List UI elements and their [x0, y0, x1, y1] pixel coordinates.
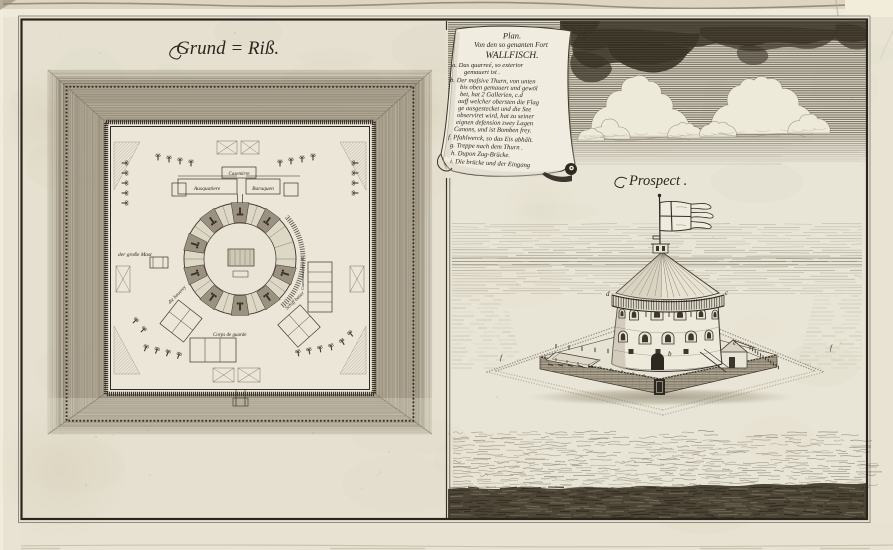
svg-text:a. Das quarreé, so exterior: a. Das quarreé, so exterior	[452, 62, 524, 69]
svg-text:d: d	[606, 290, 610, 298]
svg-text:Ausquatiere: Ausquatiere	[193, 186, 221, 192]
svg-text:Grund = Riß.: Grund = Riß.	[176, 38, 279, 59]
svg-text:gemauert ist .: gemauert ist .	[464, 69, 500, 76]
svg-text:Baraquen: Baraquen	[252, 186, 274, 192]
svg-text:der große Mast: der große Mast	[118, 251, 152, 258]
svg-text:Plan.: Plan.	[502, 31, 521, 41]
svg-text:Casemirre: Casemirre	[229, 172, 251, 177]
svg-text:Von den so genanten Fort: Von den so genanten Fort	[474, 41, 549, 49]
svg-text:Canons, und ist Bomben frey.: Canons, und ist Bomben frey.	[454, 126, 532, 134]
svg-text:Corps de guarde: Corps de guarde	[213, 333, 247, 338]
svg-text:WALLFISCH.: WALLFISCH.	[486, 51, 539, 61]
svg-text:Commandanten H.: Commandanten H.	[300, 256, 305, 290]
svg-text:Prospect .: Prospect .	[628, 173, 687, 189]
svg-text:e: e	[733, 339, 736, 347]
svg-text:b: b	[668, 350, 672, 358]
